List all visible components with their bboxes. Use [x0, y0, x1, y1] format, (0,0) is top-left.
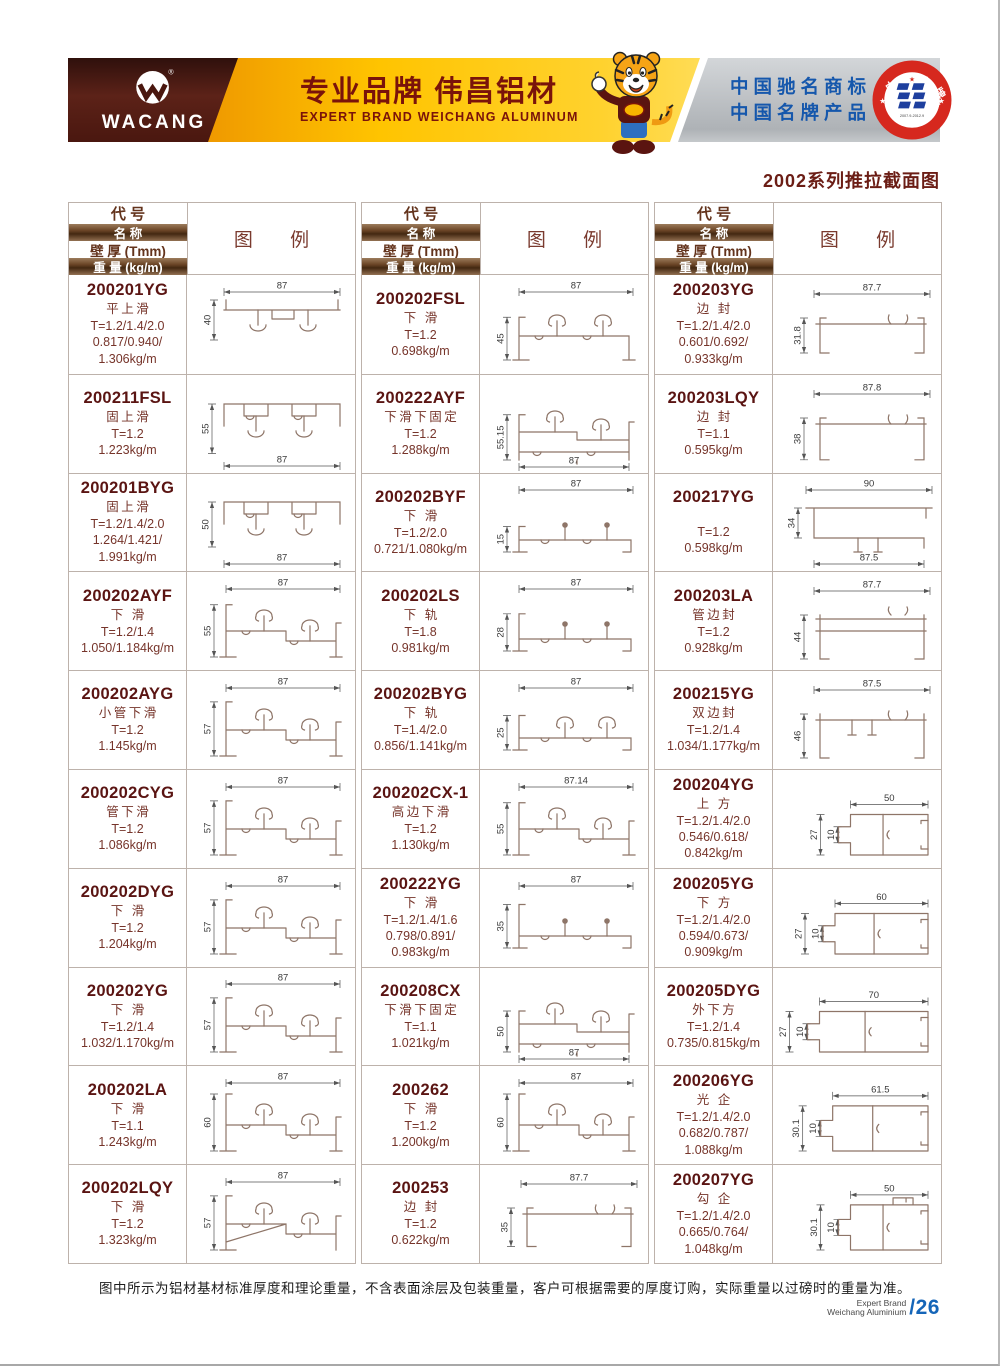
- profile-name: 下 轨: [401, 705, 439, 721]
- profile-info-cell: 200202YG下 滑T=1.2/1.41.032/1.170kg/m: [69, 968, 187, 1066]
- profile-weight: 0.933kg/m: [684, 352, 742, 368]
- profile-weight: 1.088kg/m: [684, 1143, 742, 1159]
- svg-text:10: 10: [795, 1027, 806, 1038]
- header-name: 名 称: [655, 224, 773, 241]
- profile-code: 200202CYG: [81, 784, 175, 803]
- table-header: 代 号 名 称 壁 厚 (Tmm) 重 量 (kg/m) 图 例: [655, 203, 941, 275]
- profile-diagram: 8760: [480, 1066, 648, 1164]
- profile-code: 200202FSL: [376, 290, 465, 309]
- profile-code: 200202BYG: [374, 685, 468, 704]
- header-weight: 重 量 (kg/m): [362, 258, 480, 275]
- profile-name: 下 滑: [401, 1101, 439, 1117]
- profile-row: 200202LQY下 滑T=1.21.323kg/m8757: [69, 1164, 355, 1263]
- profile-row: 200204YG上 方T=1.2/1.4/2.00.546/0.618/0.84…: [655, 769, 941, 868]
- profile-row: 200202CX-1高边下滑T=1.21.130kg/m87.1455: [362, 769, 648, 868]
- profile-diagram: 87.744: [773, 572, 941, 670]
- profile-name: 上 方: [694, 796, 732, 812]
- svg-text:38: 38: [793, 433, 804, 444]
- profile-diagram: 8757: [187, 770, 355, 868]
- profile-info-cell: 200202AYG小管下滑T=1.21.145kg/m: [69, 671, 187, 769]
- profile-thickness: T=1.2: [404, 1216, 436, 1232]
- profile-thickness: T=1.2: [404, 1118, 436, 1134]
- header-code: 代 号: [69, 203, 187, 224]
- profile-thickness: T=1.2/1.4/2.0: [676, 1208, 750, 1224]
- profile-row: 200253边 封T=1.20.622kg/m87.735: [362, 1164, 648, 1263]
- profile-code: 200215YG: [673, 685, 754, 704]
- profile-name: 下 滑: [108, 1199, 146, 1215]
- profile-thickness: T=1.1: [404, 1019, 436, 1035]
- header-name: 名 称: [69, 224, 187, 241]
- profile-code: 200208CX: [380, 982, 460, 1001]
- profile-diagram: 8757: [187, 1165, 355, 1263]
- profile-weight: 1.243kg/m: [98, 1135, 156, 1151]
- page-number: /26: [909, 1296, 940, 1320]
- profile-weight: 0.665/0.764/: [679, 1225, 749, 1241]
- profile-code: 200202DYG: [81, 883, 175, 902]
- profile-name: 管边封: [690, 607, 738, 623]
- svg-text:15: 15: [496, 534, 507, 545]
- profile-code: 200203LQY: [668, 389, 760, 408]
- svg-text:87: 87: [571, 281, 582, 292]
- profile-weight: 1.086kg/m: [98, 838, 156, 854]
- svg-text:87: 87: [571, 479, 582, 490]
- profile-code: 200202LQY: [82, 1179, 174, 1198]
- profile-weight: 1.991kg/m: [98, 550, 156, 566]
- profile-name: 下滑下固定: [382, 409, 460, 425]
- profile-diagram: 8725: [480, 671, 648, 769]
- profile-diagram: 5587: [187, 375, 355, 473]
- profile-row: 200207YG勾 企T=1.2/1.4/2.00.665/0.764/1.04…: [655, 1164, 941, 1263]
- profile-diagram: 8740: [187, 275, 355, 374]
- profile-row: 200202LA下 滑T=1.11.243kg/m8760: [69, 1065, 355, 1164]
- table-header: 代 号 名 称 壁 厚 (Tmm) 重 量 (kg/m) 图 例: [69, 203, 355, 275]
- svg-text:10: 10: [826, 1222, 837, 1233]
- profile-info-cell: 200201YG平上滑T=1.2/1.4/2.00.817/0.940/1.30…: [69, 275, 187, 374]
- brand-banner: ® WACANG 专业品牌 伟昌铝材 EXPERT BRAND WEICHANG…: [68, 58, 940, 142]
- profile-name: 双边封: [690, 705, 738, 721]
- svg-text:87: 87: [571, 578, 582, 589]
- svg-text:★: ★: [938, 96, 945, 105]
- profile-code: 200202CX-1: [373, 784, 469, 803]
- profile-diagram: 502710: [773, 770, 941, 868]
- svg-text:87.14: 87.14: [564, 775, 588, 786]
- profile-info-cell: 200203LQY边 封T=1.10.595kg/m: [655, 375, 773, 473]
- svg-text:90: 90: [864, 479, 875, 490]
- profile-row: 200202AYG小管下滑T=1.21.145kg/m8757: [69, 670, 355, 769]
- profile-info-cell: 200202CX-1高边下滑T=1.21.130kg/m: [362, 770, 480, 868]
- svg-text:70: 70: [868, 990, 879, 1001]
- profile-info-cell: 200202AYF下 滑T=1.2/1.41.050/1.184kg/m: [69, 572, 187, 670]
- profile-thickness: T=1.2/1.4/2.0: [676, 912, 750, 928]
- profile-code: 200217YG: [673, 488, 754, 507]
- profile-thickness: T=1.1: [111, 1118, 143, 1134]
- profile-code: 200206YG: [673, 1072, 754, 1091]
- profile-code: 200262: [392, 1081, 449, 1100]
- profile-code: 200253: [392, 1179, 449, 1198]
- profile-thickness: T=1.2: [111, 722, 143, 738]
- profile-info-cell: 200211FSL固上滑T=1.21.223kg/m: [69, 375, 187, 473]
- profile-row: 200203YG边 封T=1.2/1.4/2.00.601/0.692/0.93…: [655, 275, 941, 374]
- svg-text:57: 57: [203, 921, 214, 932]
- profile-thickness: T=1.2: [111, 426, 143, 442]
- logo-text: WACANG: [102, 112, 207, 134]
- profile-thickness: T=1.2/1.4: [687, 1019, 740, 1035]
- header-thickness: 壁 厚 (Tmm): [655, 241, 773, 258]
- profile-weight: 0.983kg/m: [391, 945, 449, 961]
- svg-text:50: 50: [201, 520, 212, 531]
- svg-text:87: 87: [277, 281, 288, 292]
- profile-code: 200204YG: [673, 776, 754, 795]
- profile-info-cell: 200203YG边 封T=1.2/1.4/2.00.601/0.692/0.93…: [655, 275, 773, 374]
- svg-text:87: 87: [278, 874, 289, 885]
- registered-mark: ®: [168, 69, 174, 77]
- svg-text:46: 46: [793, 731, 804, 742]
- profile-info-cell: 200222YG下 滑T=1.2/1.4/1.60.798/0.891/0.98…: [362, 869, 480, 967]
- svg-text:87: 87: [571, 677, 582, 688]
- svg-text:28: 28: [496, 627, 507, 638]
- svg-text:61.5: 61.5: [871, 1085, 890, 1096]
- profile-name: 下 滑: [401, 895, 439, 911]
- header-diagram: 图 例: [773, 203, 941, 275]
- svg-text:87.7: 87.7: [863, 580, 882, 591]
- badge-dates: 2007.9-2012.9: [900, 114, 924, 118]
- profile-row: 200211FSL固上滑T=1.21.223kg/m5587: [69, 374, 355, 473]
- header-code: 代 号: [362, 203, 480, 224]
- profile-row: 200205YG下 方T=1.2/1.4/2.00.594/0.673/0.90…: [655, 868, 941, 967]
- profile-row: 200205DYG外下方T=1.2/1.40.735/0.815kg/m7027…: [655, 967, 941, 1066]
- profile-weight: 1.145kg/m: [98, 739, 156, 755]
- profile-diagram: 8715: [480, 474, 648, 572]
- svg-text:55: 55: [496, 823, 507, 834]
- svg-text:87.7: 87.7: [570, 1173, 589, 1184]
- svg-text:50: 50: [884, 1183, 895, 1194]
- profile-code: 200202LA: [88, 1081, 167, 1100]
- profile-name: 固上滑: [104, 409, 152, 425]
- profile-weight: 0.981kg/m: [391, 641, 449, 657]
- profile-row: 200201BYG固上滑T=1.2/1.4/2.01.264/1.421/1.9…: [69, 473, 355, 572]
- profile-thickness: T=1.2/1.4/1.6: [383, 912, 457, 928]
- profile-info-cell: 200204YG上 方T=1.2/1.4/2.00.546/0.618/0.84…: [655, 770, 773, 868]
- profile-weight: 0.909kg/m: [684, 945, 742, 961]
- profile-info-cell: 200202LA下 滑T=1.11.243kg/m: [69, 1066, 187, 1164]
- profile-weight: 0.721/1.080kg/m: [374, 542, 467, 558]
- profile-diagram: 55.1587: [480, 375, 648, 473]
- profile-weight: 0.595kg/m: [684, 443, 742, 459]
- svg-text:57: 57: [203, 1020, 214, 1031]
- profile-weight: 0.546/0.618/: [679, 830, 749, 846]
- profile-name: 高边下滑: [389, 804, 452, 820]
- profile-code: 200222YG: [380, 875, 461, 894]
- profile-weight: 0.798/0.891/: [386, 929, 456, 945]
- profile-weight: 1.288kg/m: [391, 443, 449, 459]
- profile-weight: 1.021kg/m: [391, 1036, 449, 1052]
- profile-tables: 代 号 名 称 壁 厚 (Tmm) 重 量 (kg/m) 图 例 200201Y…: [68, 202, 942, 1264]
- profile-name: 平上滑: [104, 301, 152, 317]
- svg-text:87: 87: [278, 677, 289, 688]
- svg-text:87.5: 87.5: [863, 679, 882, 690]
- svg-text:87: 87: [569, 455, 580, 466]
- profile-info-cell: 200202DYG下 滑T=1.21.204kg/m: [69, 869, 187, 967]
- profile-diagram: 87.546: [773, 671, 941, 769]
- profile-weight: 0.598kg/m: [684, 541, 742, 557]
- svg-text:57: 57: [203, 724, 214, 735]
- profile-table-1: 代 号 名 称 壁 厚 (Tmm) 重 量 (kg/m) 图 例 200201Y…: [68, 202, 356, 1264]
- profile-info-cell: 200202BYF下 滑T=1.2/2.00.721/1.080kg/m: [362, 474, 480, 572]
- header-weight: 重 量 (kg/m): [655, 258, 773, 275]
- profile-weight: 1.223kg/m: [98, 443, 156, 459]
- profile-diagram: 87.1455: [480, 770, 648, 868]
- svg-text:27: 27: [809, 829, 820, 840]
- profile-info-cell: 200205DYG外下方T=1.2/1.40.735/0.815kg/m: [655, 968, 773, 1066]
- profile-row: 200203LA管边封T=1.20.928kg/m87.744: [655, 571, 941, 670]
- profile-weight: 1.200kg/m: [391, 1135, 449, 1151]
- profile-thickness: T=1.1: [697, 426, 729, 442]
- svg-text:57: 57: [203, 1218, 214, 1229]
- profile-diagram: 87.735: [480, 1165, 648, 1263]
- profile-code: 200211FSL: [83, 389, 171, 408]
- table-header: 代 号 名 称 壁 厚 (Tmm) 重 量 (kg/m) 图 例: [362, 203, 648, 275]
- svg-text:30.1: 30.1: [791, 1119, 802, 1138]
- footer-note: 图中所示为铝材基材标准厚度和理论重量，不含表面涂层及包装重量，客户可根据需要的厚…: [68, 1277, 942, 1297]
- profile-row: 200222AYF下滑下固定T=1.21.288kg/m55.1587: [362, 374, 648, 473]
- profile-row: 200222YG下 滑T=1.2/1.4/1.60.798/0.891/0.98…: [362, 868, 648, 967]
- profile-weight: 0.735/0.815kg/m: [667, 1036, 760, 1052]
- svg-text:50: 50: [884, 793, 895, 804]
- svg-text:87: 87: [277, 454, 288, 465]
- profile-code: 200207YG: [673, 1171, 754, 1190]
- profile-weight: 1.032/1.170kg/m: [81, 1036, 174, 1052]
- profile-name: 下 滑: [401, 310, 439, 326]
- profile-info-cell: 200203LA管边封T=1.20.928kg/m: [655, 572, 773, 670]
- profile-thickness: T=1.2: [111, 821, 143, 837]
- profile-diagram: 87.838: [773, 375, 941, 473]
- svg-text:10: 10: [826, 829, 837, 840]
- profile-thickness: T=1.2/1.4: [101, 1019, 154, 1035]
- svg-text:87: 87: [571, 1072, 582, 1083]
- footer-brand-line2: Weichang Aluminium: [827, 1308, 906, 1318]
- profile-weight: 0.601/0.692/: [679, 335, 749, 351]
- profile-row: 200201YG平上滑T=1.2/1.4/2.00.817/0.940/1.30…: [69, 275, 355, 374]
- footer-brand: Expert Brand Weichang Aluminium: [827, 1299, 906, 1318]
- profile-name: 小管下滑: [96, 705, 159, 721]
- profile-row: 200208CX下滑下固定T=1.11.021kg/m5087: [362, 967, 648, 1066]
- profile-code: 200202AYG: [82, 685, 174, 704]
- profile-diagram: 8757: [187, 671, 355, 769]
- profile-name: 固上滑: [104, 499, 152, 515]
- profile-table-3: 代 号 名 称 壁 厚 (Tmm) 重 量 (kg/m) 图 例 200203Y…: [654, 202, 942, 1264]
- svg-text:★: ★: [879, 96, 886, 105]
- profile-info-cell: 200215YG双边封T=1.2/1.41.034/1.177kg/m: [655, 671, 773, 769]
- profile-name: 管下滑: [104, 804, 152, 820]
- profile-thickness: T=1.2/1.4: [101, 624, 154, 640]
- profile-thickness: T=1.2/1.4/2.0: [676, 318, 750, 334]
- svg-text:60: 60: [496, 1117, 507, 1128]
- svg-text:87: 87: [569, 1048, 580, 1059]
- profile-name: 边 封: [401, 1199, 439, 1215]
- profile-thickness: T=1.2/1.4/2.0: [676, 813, 750, 829]
- profile-thickness: T=1.2/1.4/2.0: [676, 1109, 750, 1125]
- profile-name: 边 封: [694, 409, 732, 425]
- profile-info-cell: 200202BYG下 轨T=1.4/2.00.856/1.141kg/m: [362, 671, 480, 769]
- profile-diagram: 8755: [187, 572, 355, 670]
- profile-thickness: T=1.2: [404, 426, 436, 442]
- profile-row: 200217YGT=1.20.598kg/m903487.5: [655, 473, 941, 572]
- profile-code: 200205DYG: [667, 982, 761, 1001]
- china-top-brand-badge: 中国名牌 CHINA TOP BRAND ★ ★ ★ 2007.9-2012.9: [870, 58, 954, 142]
- profile-diagram: 702710: [773, 968, 941, 1066]
- profile-code: 200202BYF: [375, 488, 466, 507]
- profile-info-cell: 200201BYG固上滑T=1.2/1.4/2.01.264/1.421/1.9…: [69, 474, 187, 572]
- profile-weight: 1.204kg/m: [98, 937, 156, 953]
- profile-row: 200203LQY边 封T=1.10.595kg/m87.838: [655, 374, 941, 473]
- profile-code: 200201BYG: [81, 479, 175, 498]
- profile-thickness: T=1.2: [697, 524, 729, 540]
- profile-code: 200203LA: [674, 587, 753, 606]
- profile-thickness: T=1.2: [111, 920, 143, 936]
- svg-text:27: 27: [794, 928, 805, 939]
- profile-name: 下 方: [694, 895, 732, 911]
- profile-name: 下滑下固定: [382, 1002, 460, 1018]
- profile-info-cell: 200208CX下滑下固定T=1.11.021kg/m: [362, 968, 480, 1066]
- profile-weight: 1.130kg/m: [391, 838, 449, 854]
- profile-thickness: T=1.2: [697, 624, 729, 640]
- profile-thickness: T=1.2/2.0: [394, 525, 447, 541]
- profile-row: 200202FSL下 滑T=1.20.698kg/m8745: [362, 275, 648, 374]
- profile-name: 外下方: [690, 1002, 738, 1018]
- profile-weight: 0.698kg/m: [391, 344, 449, 360]
- svg-text:87: 87: [278, 1171, 289, 1182]
- svg-text:45: 45: [496, 334, 507, 345]
- svg-text:87: 87: [571, 874, 582, 885]
- profile-weight: 1.323kg/m: [98, 1233, 156, 1249]
- page-number-block: Expert Brand Weichang Aluminium /26: [640, 1296, 940, 1320]
- svg-text:55: 55: [201, 423, 212, 434]
- profile-code: 200222AYF: [376, 389, 465, 408]
- profile-info-cell: 200202FSL下 滑T=1.20.698kg/m: [362, 275, 480, 374]
- header-weight: 重 量 (kg/m): [69, 258, 187, 275]
- profile-weight: 1.034/1.177kg/m: [667, 739, 760, 755]
- profile-table-2: 代 号 名 称 壁 厚 (Tmm) 重 量 (kg/m) 图 例 200202F…: [361, 202, 649, 1264]
- profile-code: 200201YG: [87, 281, 168, 300]
- profile-weight: 1.306kg/m: [98, 352, 156, 368]
- profile-name: 边 封: [694, 301, 732, 317]
- profile-info-cell: 200262下 滑T=1.21.200kg/m: [362, 1066, 480, 1164]
- profile-name: 下 滑: [401, 508, 439, 524]
- series-title: 2002系列推拉截面图: [560, 167, 940, 193]
- profile-row: 200202LS下 轨T=1.80.981kg/m8728: [362, 571, 648, 670]
- profile-row: 200206YG光 企T=1.2/1.4/2.00.682/0.787/1.08…: [655, 1065, 941, 1164]
- header-diagram: 图 例: [480, 203, 648, 275]
- svg-text:35: 35: [500, 1222, 511, 1233]
- profile-row: 200202AYF下 滑T=1.2/1.41.050/1.184kg/m8755: [69, 571, 355, 670]
- svg-text:10: 10: [808, 1123, 819, 1134]
- profile-diagram: 8735: [480, 869, 648, 967]
- profile-code: 200202AYF: [83, 587, 172, 606]
- profile-thickness: T=1.2: [404, 327, 436, 343]
- profile-code: 200205YG: [673, 875, 754, 894]
- profile-thickness: T=1.2/1.4: [687, 722, 740, 738]
- profile-weight: 0.682/0.787/: [679, 1126, 749, 1142]
- svg-text:87: 87: [277, 553, 288, 564]
- svg-text:60: 60: [203, 1117, 214, 1128]
- svg-text:10: 10: [811, 928, 822, 939]
- svg-text:87.5: 87.5: [860, 553, 879, 564]
- profile-row: 200202BYG下 轨T=1.4/2.00.856/1.141kg/m8725: [362, 670, 648, 769]
- profile-weight: 0.928kg/m: [684, 641, 742, 657]
- svg-text:27: 27: [778, 1027, 789, 1038]
- profile-thickness: T=1.2: [111, 1216, 143, 1232]
- profile-diagram: 5087: [187, 474, 355, 572]
- profile-diagram: 8757: [187, 869, 355, 967]
- profile-weight: 0.842kg/m: [684, 846, 742, 862]
- profile-info-cell: 200206YG光 企T=1.2/1.4/2.00.682/0.787/1.08…: [655, 1066, 773, 1164]
- profile-weight: 0.622kg/m: [391, 1233, 449, 1249]
- profile-thickness: T=1.2: [404, 821, 436, 837]
- svg-text:87.8: 87.8: [863, 382, 882, 393]
- profile-row: 200215YG双边封T=1.2/1.41.034/1.177kg/m87.54…: [655, 670, 941, 769]
- svg-text:87: 87: [278, 973, 289, 984]
- profile-row: 200202YG下 滑T=1.2/1.41.032/1.170kg/m8757: [69, 967, 355, 1066]
- profile-diagram: 8760: [187, 1066, 355, 1164]
- svg-text:87.7: 87.7: [863, 283, 882, 294]
- profile-info-cell: 200217YGT=1.20.598kg/m: [655, 474, 773, 572]
- wacang-emblem-icon: ®: [131, 66, 177, 110]
- profile-weight: 0.856/1.141kg/m: [374, 739, 467, 755]
- profile-code: 200203YG: [673, 281, 754, 300]
- svg-text:87: 87: [278, 1072, 289, 1083]
- svg-text:35: 35: [496, 921, 507, 932]
- svg-text:55.15: 55.15: [496, 425, 507, 449]
- profile-row: 200202BYF下 滑T=1.2/2.00.721/1.080kg/m8715: [362, 473, 648, 572]
- header-name: 名 称: [362, 224, 480, 241]
- profile-diagram: 8757: [187, 968, 355, 1066]
- svg-text:25: 25: [496, 728, 507, 739]
- svg-text:40: 40: [203, 315, 214, 326]
- profile-diagram: 61.530.110: [773, 1066, 941, 1164]
- profile-code: 200202YG: [87, 982, 168, 1001]
- svg-text:55: 55: [203, 626, 214, 637]
- profile-info-cell: 200202LS下 轨T=1.80.981kg/m: [362, 572, 480, 670]
- profile-thickness: T=1.2/1.4/2.0: [90, 516, 164, 532]
- profile-weight: 1.264/1.421/: [93, 533, 163, 549]
- profile-row: 200202CYG管下滑T=1.21.086kg/m8757: [69, 769, 355, 868]
- profile-thickness: T=1.8: [404, 624, 436, 640]
- profile-code: 200202LS: [381, 587, 460, 606]
- profile-name: 勾 企: [694, 1191, 732, 1207]
- profile-name: 下 滑: [108, 1101, 146, 1117]
- header-diagram: 图 例: [187, 203, 355, 275]
- profile-thickness: T=1.4/2.0: [394, 722, 447, 738]
- svg-text:60: 60: [876, 892, 887, 903]
- profile-weight: 1.050/1.184kg/m: [81, 641, 174, 657]
- svg-text:50: 50: [496, 1027, 507, 1038]
- profile-diagram: 8745: [480, 275, 648, 374]
- profile-info-cell: 200202LQY下 滑T=1.21.323kg/m: [69, 1165, 187, 1263]
- svg-text:44: 44: [793, 632, 804, 643]
- profile-thickness: T=1.2/1.4/2.0: [90, 318, 164, 334]
- profile-weight: 0.817/0.940/: [93, 335, 163, 351]
- profile-info-cell: 200253边 封T=1.20.622kg/m: [362, 1165, 480, 1263]
- svg-text:30.1: 30.1: [809, 1218, 820, 1237]
- profile-diagram: 602710: [773, 869, 941, 967]
- profile-diagram: 5087: [480, 968, 648, 1066]
- header-thickness: 壁 厚 (Tmm): [69, 241, 187, 258]
- profile-info-cell: 200205YG下 方T=1.2/1.4/2.00.594/0.673/0.90…: [655, 869, 773, 967]
- profile-row: 200262下 滑T=1.21.200kg/m8760: [362, 1065, 648, 1164]
- profile-info-cell: 200222AYF下滑下固定T=1.21.288kg/m: [362, 375, 480, 473]
- profile-row: 200202DYG下 滑T=1.21.204kg/m8757: [69, 868, 355, 967]
- profile-name: 下 滑: [108, 1002, 146, 1018]
